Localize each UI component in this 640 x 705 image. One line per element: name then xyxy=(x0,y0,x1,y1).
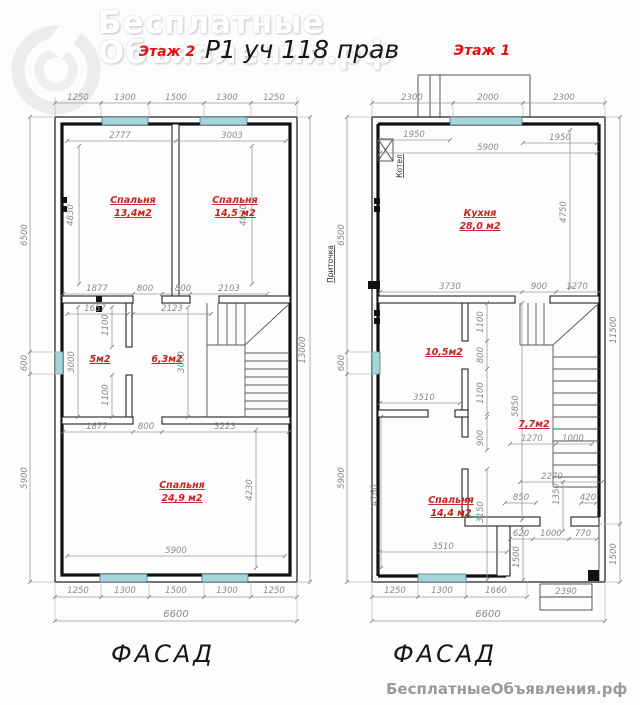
floor1-plan: 2300 2000 2300 1950 5900 1950 6500 600 5… xyxy=(326,75,620,668)
dim-label: 1250 xyxy=(263,93,285,103)
dim-label: 1660 xyxy=(485,586,507,596)
dim-label: 1500 xyxy=(165,586,187,596)
dim-label: 800 xyxy=(175,284,191,294)
dim-label: 5900 xyxy=(165,546,187,556)
dim-label: 1300 xyxy=(216,586,238,596)
dim-label: 1100 xyxy=(476,382,486,404)
dim-label: 6500 xyxy=(20,224,30,246)
room-label: Спальня xyxy=(428,495,474,506)
dim-label: 770 xyxy=(575,529,591,539)
dim-label: 420 xyxy=(580,493,596,503)
floor2-title: Этаж 2 xyxy=(139,44,195,60)
dim-label: 3730 xyxy=(439,282,461,292)
dim-label: 1100 xyxy=(476,311,486,333)
dim-label: 900 xyxy=(476,430,486,446)
dim-label: 1250 xyxy=(384,586,406,596)
dim-label: 1500 xyxy=(165,93,187,103)
dim-label: 900 xyxy=(531,282,547,292)
floor1-room-labels: Кухня 28,0 м2 10,5м2 7,7м2 Спальня 14,4 … xyxy=(425,208,550,519)
room-area: 28,0 м2 xyxy=(459,221,501,232)
dim-label: 1500 xyxy=(512,546,522,568)
dim-label: 1950 xyxy=(403,130,425,140)
dim-label: 800 xyxy=(138,422,154,432)
floor1-stairs xyxy=(520,303,599,487)
room-area: 24,9 м2 xyxy=(161,493,203,504)
dim-label: 2300 xyxy=(401,93,423,103)
dim-label: 2270 xyxy=(541,472,563,482)
dim-label: 5900 xyxy=(477,143,499,153)
dim-label: 800 xyxy=(476,347,486,363)
dim-label: 3150 xyxy=(476,501,486,523)
room-area: 5м2 xyxy=(90,354,111,365)
dim-label: 2777 xyxy=(109,131,131,141)
dim-label: 1000 xyxy=(540,529,562,539)
dim-label: 3223 xyxy=(214,422,236,432)
room-area: 13,4м2 xyxy=(114,208,152,219)
dim-label: 3510 xyxy=(432,542,454,552)
dim-label: 1100 xyxy=(101,384,111,406)
room-area: 6,3м2 xyxy=(151,354,183,365)
footer-watermark: БесплатныеОбъявления.рф xyxy=(386,680,627,698)
floor1-facade-label: ФАСАД xyxy=(393,640,497,668)
dim-label: 1500 xyxy=(609,543,619,565)
dim-label: 5850 xyxy=(511,395,521,417)
room-label: Спальня xyxy=(212,195,258,206)
dim-label: 2103 xyxy=(218,284,240,294)
dim-label: 2123 xyxy=(161,304,183,314)
dim-label: 4230 xyxy=(245,479,255,501)
dim-label: 1657 xyxy=(84,304,106,314)
dim-label: 1250 xyxy=(67,586,89,596)
dim-label: 6500 xyxy=(337,224,347,246)
dim-label: 600 xyxy=(337,355,347,371)
dim-label: 3510 xyxy=(413,393,435,403)
dim-label: 2390 xyxy=(555,587,577,597)
dim-label: 1300 xyxy=(114,586,136,596)
dim-label: 1270 xyxy=(521,434,543,444)
room-label: Кухня xyxy=(464,208,497,219)
dim-label: 5900 xyxy=(337,467,347,489)
floorplan-drawing: Бесплатные Объявления.рф Р1 уч 118 прав … xyxy=(0,0,640,705)
dim-label: 1877 xyxy=(86,422,108,432)
floor2-windows xyxy=(55,117,248,582)
dim-label: 2000 xyxy=(477,93,499,103)
dim-label: 620 xyxy=(513,529,529,539)
floor1-top-porch xyxy=(418,75,530,117)
dim-label: 4750 xyxy=(559,201,569,223)
dim-label: 1250 xyxy=(263,586,285,596)
dim-label: 4160 xyxy=(370,484,380,506)
floor2-stairs xyxy=(207,303,290,417)
room-area: 10,5м2 xyxy=(425,347,463,358)
dim-label: 1000 xyxy=(562,434,584,444)
dim-label: 1950 xyxy=(549,133,571,143)
floor2-facade-label: ФАСАД xyxy=(111,640,215,668)
room-label: Спальня xyxy=(159,480,205,491)
dim-label: 1100 xyxy=(101,314,111,336)
supply-vent-label: Приточка xyxy=(326,245,335,283)
room-area: 14,4 м2 xyxy=(430,508,472,519)
floor1-title: Этаж 1 xyxy=(454,43,510,59)
dim-label: 11500 xyxy=(609,316,619,343)
dim-label: 3000 xyxy=(67,351,77,373)
dim-label: 3003 xyxy=(221,131,243,141)
dim-label: 600 xyxy=(20,355,30,371)
dim-label: 850 xyxy=(513,493,529,503)
floor2-plan: 1250 1300 1500 1300 1250 2777 3003 4830 … xyxy=(20,93,310,668)
dim-label: 1300 xyxy=(216,93,238,103)
dim-label: 1300 xyxy=(114,93,136,103)
dim-label: 6600 xyxy=(475,609,500,620)
dim-label: 1350 xyxy=(552,483,562,505)
dim-label: 2300 xyxy=(553,93,575,103)
dim-label: 13000 xyxy=(298,336,308,363)
dim-label: 4830 xyxy=(66,204,76,226)
drawing-title: Р1 уч 118 прав xyxy=(205,35,399,64)
dim-label: 1300 xyxy=(431,586,453,596)
floor2-walls xyxy=(55,117,297,582)
dim-label: 1877 xyxy=(86,284,108,294)
room-area: 14,5 м2 xyxy=(214,208,256,219)
dim-label: 800 xyxy=(137,284,153,294)
dim-label: 5900 xyxy=(20,467,30,489)
dim-label: 1270 xyxy=(566,282,588,292)
plan-svg: Р1 уч 118 прав Этаж 2 Этаж 1 xyxy=(0,0,640,705)
room-label: Спальня xyxy=(110,195,156,206)
room-area: 7,7м2 xyxy=(518,419,550,430)
floor1-walls xyxy=(368,117,605,582)
boiler-symbol xyxy=(378,139,393,161)
boiler-label: Котел xyxy=(395,154,404,178)
dim-label: 1250 xyxy=(67,93,89,103)
dim-label: 6600 xyxy=(163,609,188,620)
